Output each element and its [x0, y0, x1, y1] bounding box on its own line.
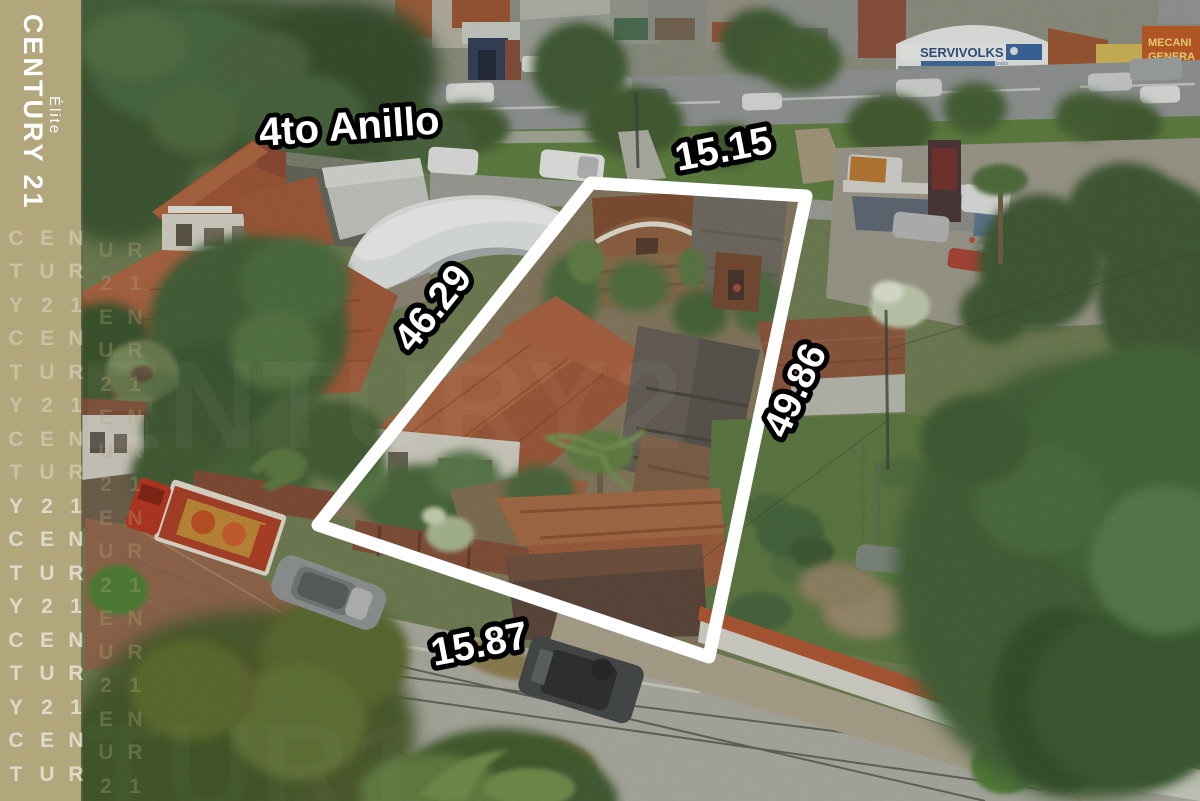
svg-text:Élite: Élite: [46, 96, 63, 135]
svg-text:R: R: [127, 239, 142, 262]
svg-text:Y: Y: [9, 394, 23, 417]
svg-text:E: E: [40, 629, 54, 652]
svg-text:R: R: [68, 361, 83, 384]
svg-text:E: E: [40, 528, 54, 551]
svg-text:1: 1: [129, 373, 141, 396]
svg-text:C: C: [8, 428, 23, 451]
svg-text:T: T: [10, 662, 23, 685]
svg-text:T: T: [10, 361, 23, 384]
svg-text:U: U: [39, 562, 54, 585]
svg-text:2: 2: [41, 294, 53, 317]
svg-text:N: N: [127, 507, 142, 530]
svg-text:C: C: [8, 227, 23, 250]
svg-text:1: 1: [129, 272, 141, 295]
svg-text:N: N: [68, 227, 83, 250]
svg-text:1: 1: [129, 775, 141, 798]
svg-text:U: U: [98, 641, 113, 664]
svg-text:N: N: [127, 306, 142, 329]
svg-text:U: U: [39, 461, 54, 484]
svg-text:U: U: [39, 763, 54, 786]
svg-text:R: R: [127, 339, 142, 362]
svg-text:1: 1: [129, 473, 141, 496]
svg-text:Y: Y: [9, 696, 23, 719]
svg-text:2: 2: [41, 595, 53, 618]
svg-text:U: U: [98, 239, 113, 262]
svg-text:E: E: [99, 708, 113, 731]
svg-text:R: R: [68, 562, 83, 585]
svg-text:R: R: [68, 763, 83, 786]
svg-text:N: N: [127, 708, 142, 731]
svg-text:1: 1: [129, 574, 141, 597]
svg-text:U: U: [39, 260, 54, 283]
svg-text:2: 2: [100, 473, 112, 496]
svg-text:1: 1: [129, 674, 141, 697]
svg-text:1: 1: [70, 394, 82, 417]
svg-text:E: E: [40, 227, 54, 250]
svg-text:R: R: [68, 662, 83, 685]
svg-text:N: N: [68, 729, 83, 752]
svg-text:T: T: [10, 562, 23, 585]
svg-text:R: R: [68, 260, 83, 283]
svg-text:E: E: [99, 406, 113, 429]
svg-text:U: U: [98, 440, 113, 463]
svg-text:C: C: [8, 528, 23, 551]
svg-text:U: U: [98, 339, 113, 362]
svg-text:E: E: [40, 729, 54, 752]
svg-text:N: N: [127, 406, 142, 429]
svg-text:CENTURY 21: CENTURY 21: [18, 14, 48, 211]
svg-text:1: 1: [70, 495, 82, 518]
svg-text:2: 2: [100, 674, 112, 697]
svg-text:U: U: [98, 540, 113, 563]
svg-text:2: 2: [100, 272, 112, 295]
svg-text:2: 2: [100, 373, 112, 396]
svg-text:1: 1: [70, 595, 82, 618]
svg-text:T: T: [10, 260, 23, 283]
svg-text:1: 1: [70, 696, 82, 719]
svg-text:2: 2: [41, 696, 53, 719]
svg-text:2: 2: [41, 495, 53, 518]
svg-text:1: 1: [70, 294, 82, 317]
svg-text:U: U: [39, 662, 54, 685]
svg-text:E: E: [40, 327, 54, 350]
svg-text:R: R: [127, 440, 142, 463]
svg-text:N: N: [127, 607, 142, 630]
svg-text:ENTURY2: ENTURY2: [80, 336, 687, 475]
svg-text:R: R: [68, 461, 83, 484]
svg-text:2: 2: [100, 574, 112, 597]
svg-text:N: N: [68, 528, 83, 551]
svg-text:Y: Y: [9, 595, 23, 618]
svg-text:R: R: [127, 741, 142, 764]
svg-text:Y: Y: [9, 495, 23, 518]
svg-text:R: R: [127, 540, 142, 563]
svg-text:N: N: [68, 428, 83, 451]
svg-text:C: C: [8, 629, 23, 652]
svg-text:T: T: [10, 461, 23, 484]
svg-text:2: 2: [41, 394, 53, 417]
svg-text:N: N: [68, 327, 83, 350]
svg-text:U: U: [98, 741, 113, 764]
svg-text:Y: Y: [9, 294, 23, 317]
svg-text:C: C: [8, 729, 23, 752]
svg-text:R: R: [127, 641, 142, 664]
svg-text:T: T: [10, 763, 23, 786]
svg-text:E: E: [99, 607, 113, 630]
svg-text:C: C: [8, 327, 23, 350]
svg-text:N: N: [68, 629, 83, 652]
svg-text:2: 2: [100, 775, 112, 798]
svg-text:E: E: [99, 306, 113, 329]
svg-text:E: E: [99, 507, 113, 530]
svg-text:E: E: [40, 428, 54, 451]
svg-text:U: U: [39, 361, 54, 384]
